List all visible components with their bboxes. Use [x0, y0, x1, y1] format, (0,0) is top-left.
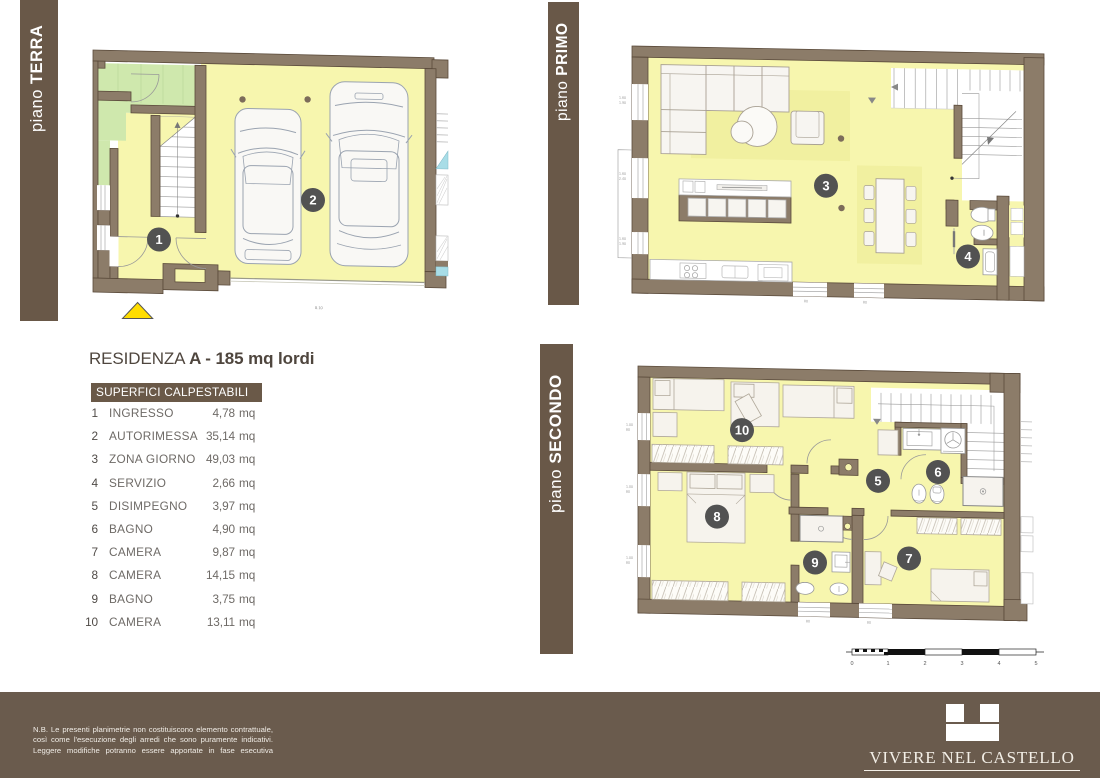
- svg-text:2: 2: [309, 192, 316, 207]
- svg-text:10: 10: [735, 422, 749, 437]
- svg-text:0: 0: [850, 661, 853, 667]
- svg-text:5: 5: [874, 473, 881, 488]
- svg-text:80: 80: [863, 300, 867, 304]
- svg-text:2.40: 2.40: [619, 177, 626, 181]
- svg-text:9: 9: [811, 555, 818, 570]
- svg-text:1.00: 1.00: [626, 485, 633, 489]
- svg-text:80: 80: [867, 621, 871, 625]
- svg-text:7: 7: [905, 551, 912, 566]
- svg-text:1.60: 1.60: [619, 172, 626, 176]
- svg-text:80: 80: [626, 561, 630, 565]
- svg-text:5: 5: [1034, 661, 1037, 667]
- svg-text:1.60: 1.60: [619, 96, 626, 100]
- svg-text:1.00: 1.00: [626, 423, 633, 427]
- svg-text:8.10: 8.10: [315, 305, 324, 310]
- svg-text:80: 80: [806, 619, 810, 623]
- svg-text:3: 3: [960, 661, 963, 667]
- svg-text:3: 3: [822, 178, 829, 193]
- svg-text:2: 2: [923, 661, 926, 667]
- svg-text:4: 4: [997, 661, 1000, 667]
- svg-text:1.90: 1.90: [619, 101, 626, 105]
- svg-text:80: 80: [626, 490, 630, 494]
- svg-text:80: 80: [626, 428, 630, 432]
- svg-text:6: 6: [934, 464, 941, 479]
- svg-text:1.60: 1.60: [619, 237, 626, 241]
- svg-text:4: 4: [964, 249, 972, 264]
- svg-text:80: 80: [804, 299, 808, 303]
- svg-text:1: 1: [886, 661, 889, 667]
- svg-text:1: 1: [155, 232, 162, 247]
- svg-text:1.90: 1.90: [619, 242, 626, 246]
- svg-text:1.00: 1.00: [626, 556, 633, 560]
- svg-text:8: 8: [713, 509, 720, 524]
